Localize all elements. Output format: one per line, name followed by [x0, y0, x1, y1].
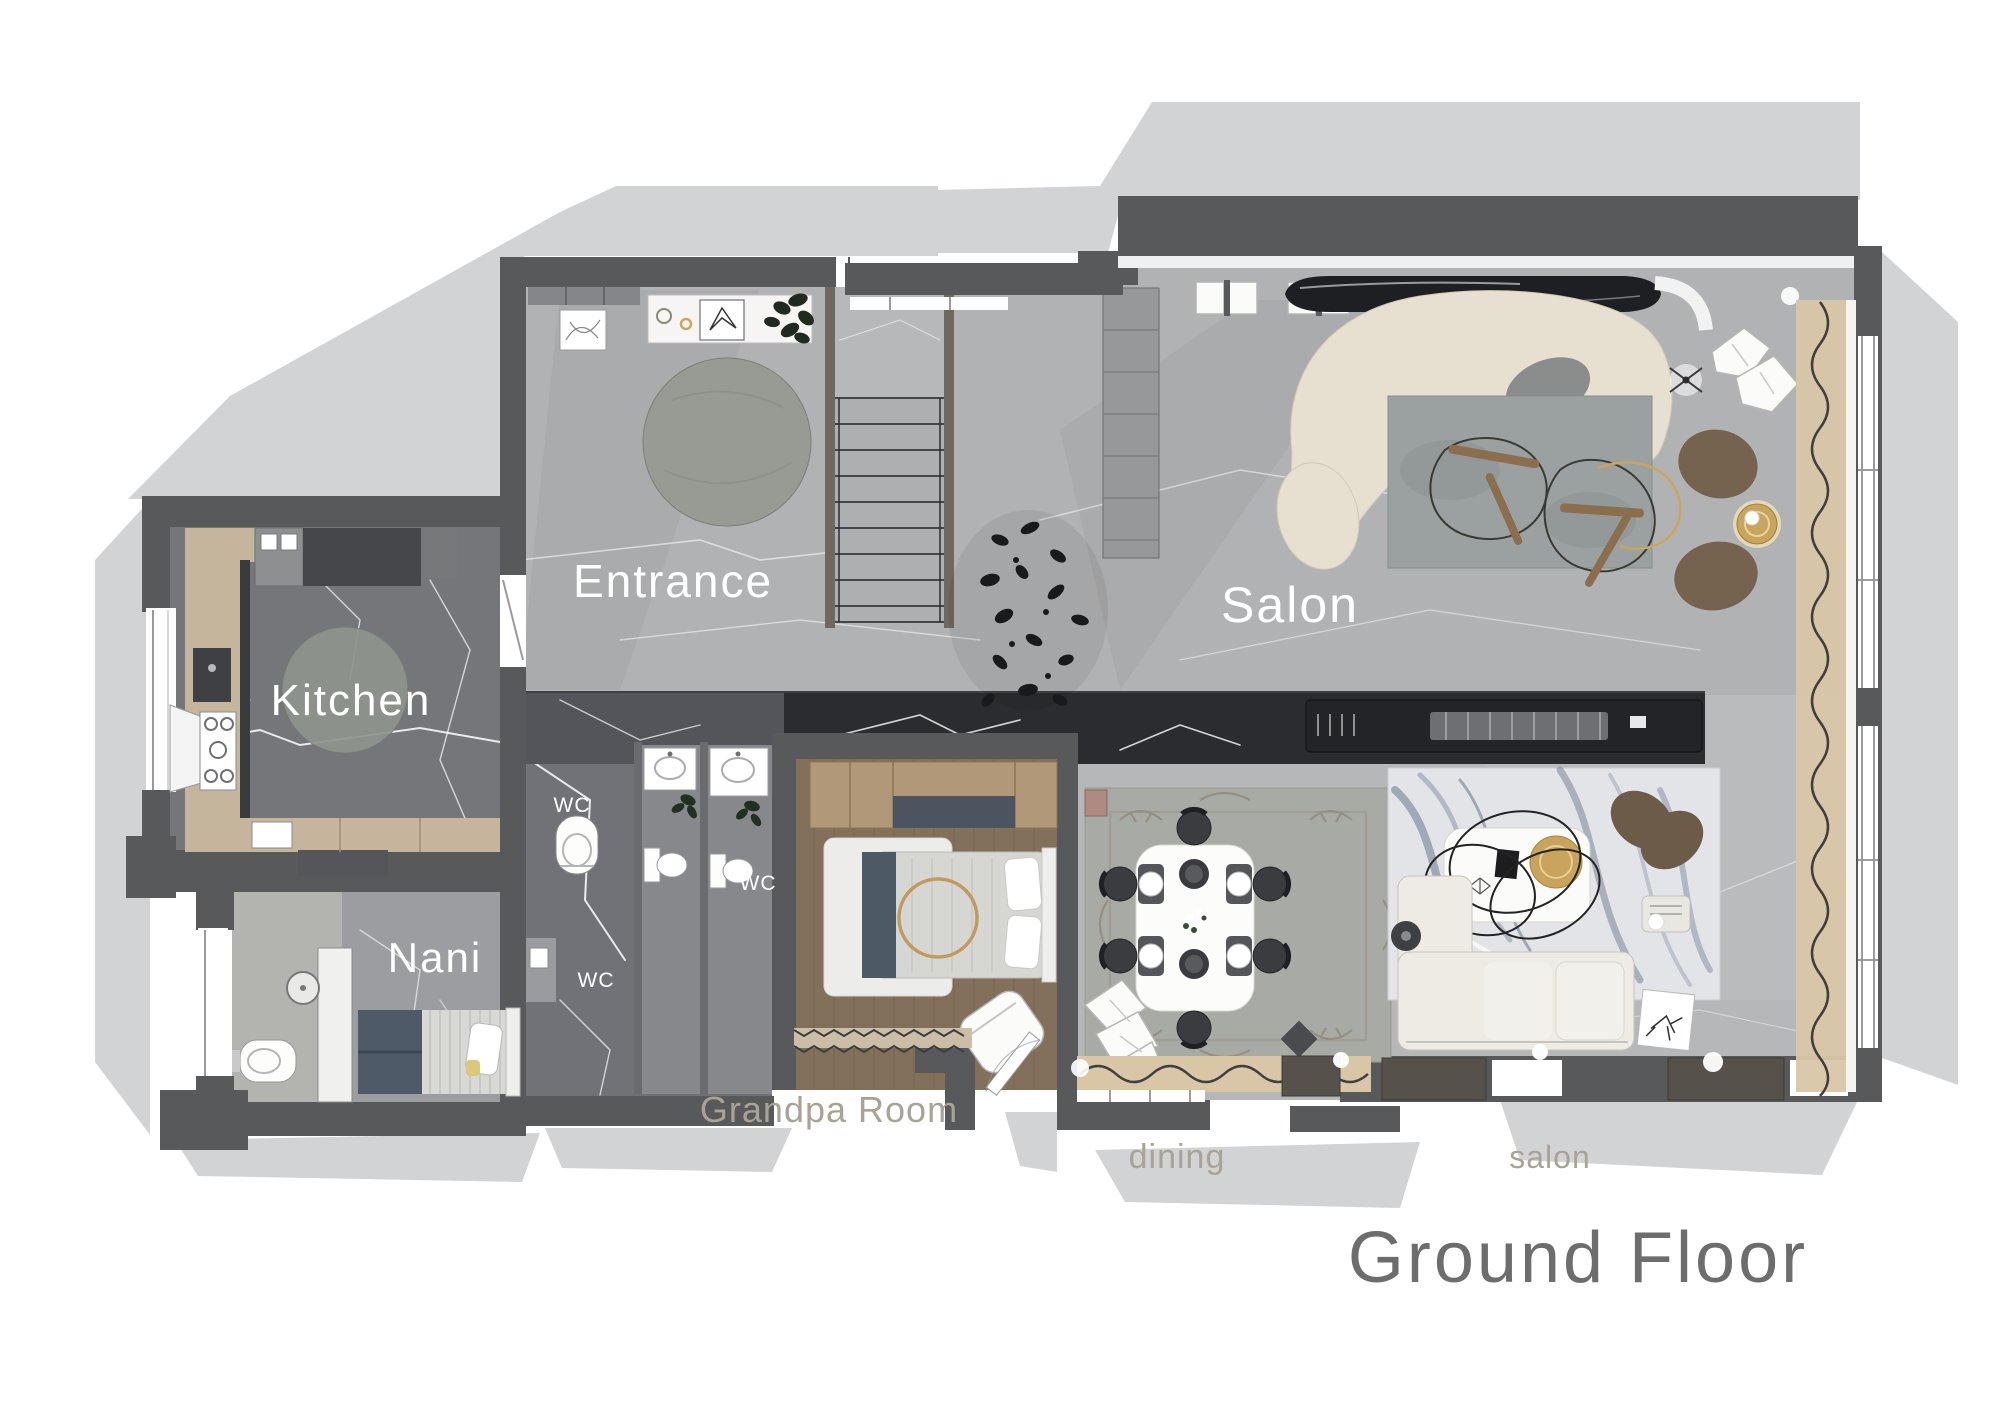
label-dining: dining — [1129, 1138, 1226, 1176]
floor-plan-drawing: Entrance Salon Kitchen Nani WC WC WC Gra… — [0, 0, 2000, 1414]
label-salon-seating: salon — [1509, 1139, 1591, 1175]
label-wc-lower: WC — [578, 969, 615, 992]
tv-sideboard — [1306, 700, 1702, 752]
dining-area — [1085, 788, 1391, 1088]
floor-lamp — [1670, 364, 1702, 396]
entrance-round-rug — [643, 358, 811, 526]
salon-seating-area — [1388, 768, 1720, 1051]
shoe-bench — [560, 310, 606, 350]
cooktop — [200, 712, 236, 790]
gold-side-table — [1733, 500, 1781, 548]
nani-bed — [358, 1008, 520, 1096]
staircase — [825, 287, 954, 628]
grandpa-room-furniture — [794, 762, 1057, 1095]
label-entrance: Entrance — [573, 555, 773, 607]
label-wc-corridor: WC — [554, 794, 591, 817]
indoor-tree — [948, 510, 1108, 710]
label-nani: Nani — [388, 934, 482, 981]
side-table — [1642, 896, 1690, 932]
grandpa-bed — [862, 848, 1056, 982]
small-artwork — [1085, 790, 1107, 816]
threshold-runner — [794, 1028, 972, 1048]
label-grandpa-room: Grandpa Room — [700, 1089, 958, 1130]
hall-closet — [1103, 288, 1159, 558]
floor-plan-page: Entrance Salon Kitchen Nani WC WC WC Gra… — [0, 0, 2000, 1414]
floor-artwork — [1637, 989, 1695, 1050]
plan-title: Ground Floor — [1348, 1218, 1808, 1298]
stair-treads — [835, 398, 944, 622]
label-kitchen: Kitchen — [271, 676, 432, 725]
label-wc-bathroom: WC — [740, 872, 777, 895]
label-salon: Salon — [1221, 577, 1359, 633]
